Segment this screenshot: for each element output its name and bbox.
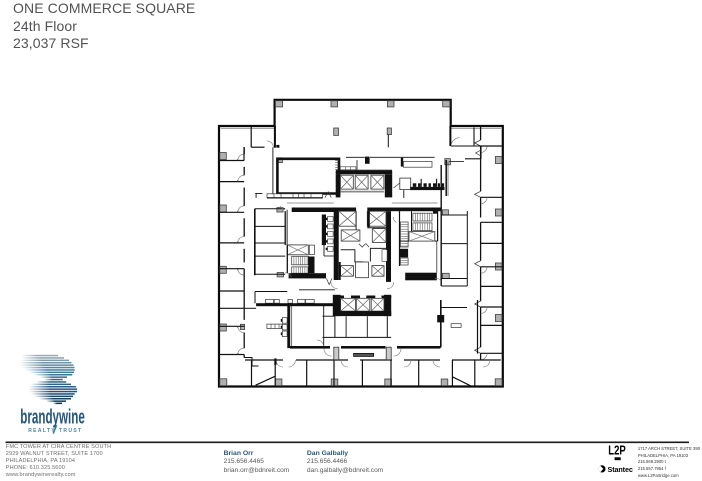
svg-text:Stantec: Stantec xyxy=(608,465,633,474)
svg-text:TRUST: TRUST xyxy=(59,428,82,434)
svg-text:L2P: L2P xyxy=(608,442,626,457)
svg-text:REALTY: REALTY xyxy=(28,428,56,434)
svg-text:brandywine: brandywine xyxy=(20,407,85,429)
